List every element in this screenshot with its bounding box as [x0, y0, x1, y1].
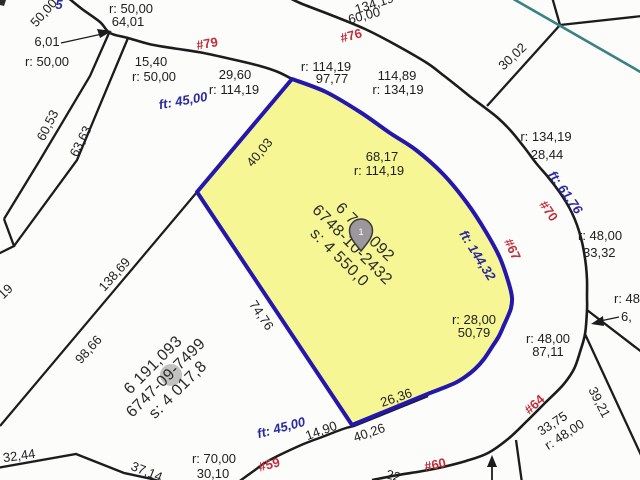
- svg-text:r: 50,00: r: 50,00: [132, 69, 176, 84]
- svg-text:68,17: 68,17: [366, 149, 399, 164]
- svg-text:15,40: 15,40: [135, 54, 168, 69]
- svg-text:22: 22: [385, 467, 403, 480]
- svg-text:30,10: 30,10: [197, 466, 230, 480]
- svg-text:6,: 6,: [621, 309, 632, 324]
- svg-text:6,01: 6,01: [34, 34, 59, 49]
- svg-text:33,32: 33,32: [583, 245, 616, 260]
- svg-text:50,79: 50,79: [458, 325, 491, 340]
- svg-text:1: 1: [358, 227, 363, 238]
- svg-text:97,77: 97,77: [316, 71, 349, 86]
- svg-text:r: 134,19: r: 134,19: [520, 129, 571, 144]
- svg-text:r: 70,00: r: 70,00: [192, 451, 236, 466]
- svg-text:29,60: 29,60: [219, 67, 252, 82]
- svg-text:64,01: 64,01: [112, 14, 145, 29]
- svg-text:r: 114,19: r: 114,19: [209, 82, 259, 97]
- svg-text:r: 50,00: r: 50,00: [25, 54, 69, 69]
- svg-text:r: 134,19: r: 134,19: [372, 82, 423, 97]
- svg-text:5: 5: [55, 0, 63, 12]
- svg-text:r: 48,00: r: 48,00: [614, 291, 640, 306]
- svg-text:87,11: 87,11: [532, 344, 564, 359]
- svg-text:28,44: 28,44: [531, 147, 564, 162]
- svg-text:r: 114,19: r: 114,19: [354, 163, 404, 178]
- svg-text:114,89: 114,89: [378, 68, 417, 83]
- svg-text:r: 48,00: r: 48,00: [578, 228, 622, 243]
